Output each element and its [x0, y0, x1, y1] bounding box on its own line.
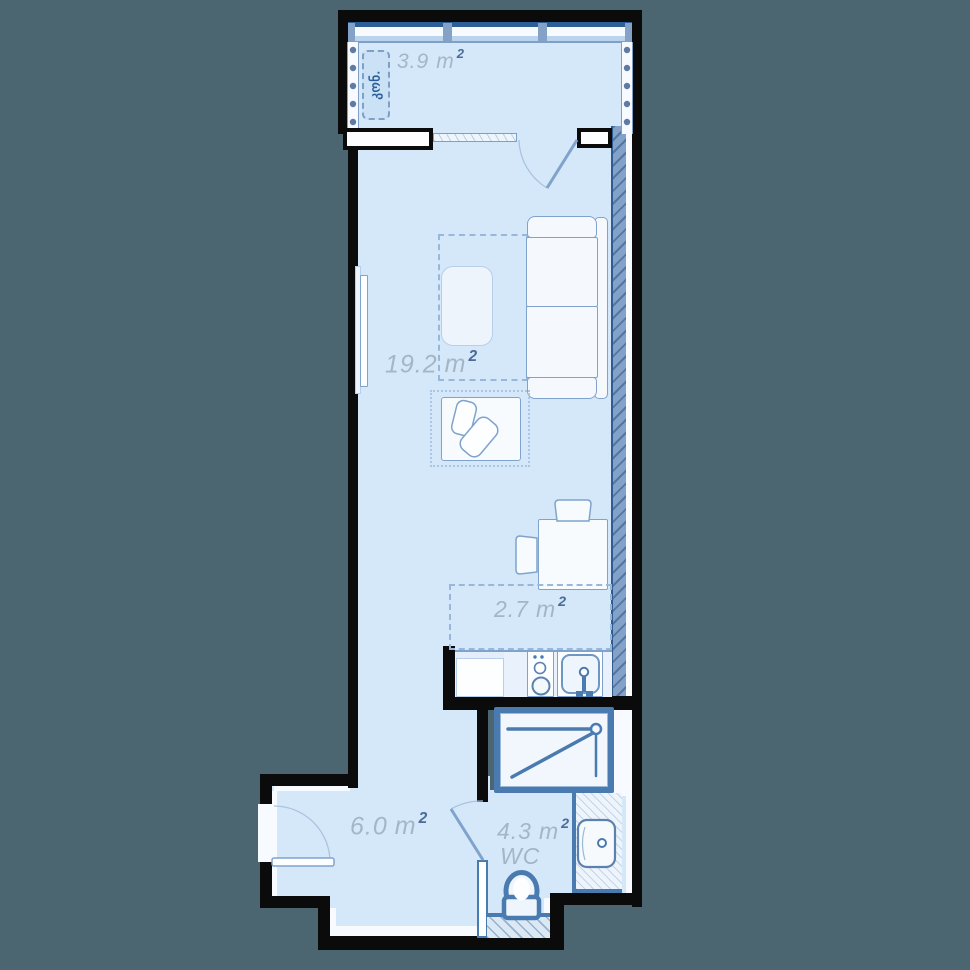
wall-balcony-right: [632, 10, 642, 134]
balcony-wall-window-block: [343, 128, 433, 150]
armchair: [441, 397, 521, 461]
wall-living-left: [348, 126, 358, 788]
kitchen-cabinet-top-strip: [456, 652, 504, 659]
area-label-balcony: 3.9m2: [397, 48, 463, 74]
window-mullion-mid-2: [538, 23, 547, 41]
dining-table: [538, 519, 608, 590]
coffee-table: [441, 266, 493, 346]
wall-lining-step: [330, 908, 336, 936]
ac-unit-box: კონ.: [362, 50, 390, 120]
wall-hall-top: [264, 774, 354, 786]
wall-lining-closet-right: [614, 708, 628, 796]
sofa-seat-2: [526, 306, 598, 378]
wall-top: [338, 10, 642, 22]
sofa-armrest-bottom: [527, 377, 597, 399]
tv-panel: [360, 275, 368, 387]
sofa-seat-1: [526, 237, 598, 307]
exterior-cutout-bottom-left: [250, 908, 328, 970]
wall-hall-left-upper: [260, 774, 272, 806]
window-mullion-right: [625, 23, 632, 41]
wc-tile-strip: [487, 913, 550, 938]
wall-bottom-right: [550, 893, 642, 905]
balcony-railing-left: [347, 42, 359, 134]
entrance-opening: [258, 804, 272, 862]
wall-wc-partition-upper: [477, 706, 488, 802]
ac-unit-label: კონ.: [368, 70, 384, 99]
wall-lining-hall-left: [272, 791, 277, 901]
balcony-sliding-window: [433, 133, 517, 142]
floor-plan: კონ.: [0, 0, 970, 970]
wall-lining-hall-top: [274, 786, 350, 791]
area-label-living: 19.2m2: [385, 350, 476, 379]
area-label-wc: 4.3m2: [497, 818, 568, 845]
balcony-window-glass: [348, 27, 632, 36]
kitchen-sink-unit: [557, 651, 603, 697]
balcony-railing-right: [621, 42, 633, 134]
wc-name-label: WC: [500, 843, 540, 870]
balcony-window-bottom-line: [348, 41, 632, 43]
closet: [494, 707, 614, 793]
sofa-armrest-top: [527, 216, 597, 238]
area-label-hall: 6.0m2: [350, 812, 426, 841]
balcony-wall-pier: [577, 128, 612, 148]
stove: [527, 651, 554, 697]
wall-right: [632, 128, 642, 907]
window-mullion-left: [348, 23, 355, 41]
area-label-kitchen: 2.7m2: [494, 596, 565, 623]
washbasin-niche: [572, 793, 622, 893]
wall-bottom: [318, 936, 564, 950]
window-mullion-mid-1: [443, 23, 452, 41]
